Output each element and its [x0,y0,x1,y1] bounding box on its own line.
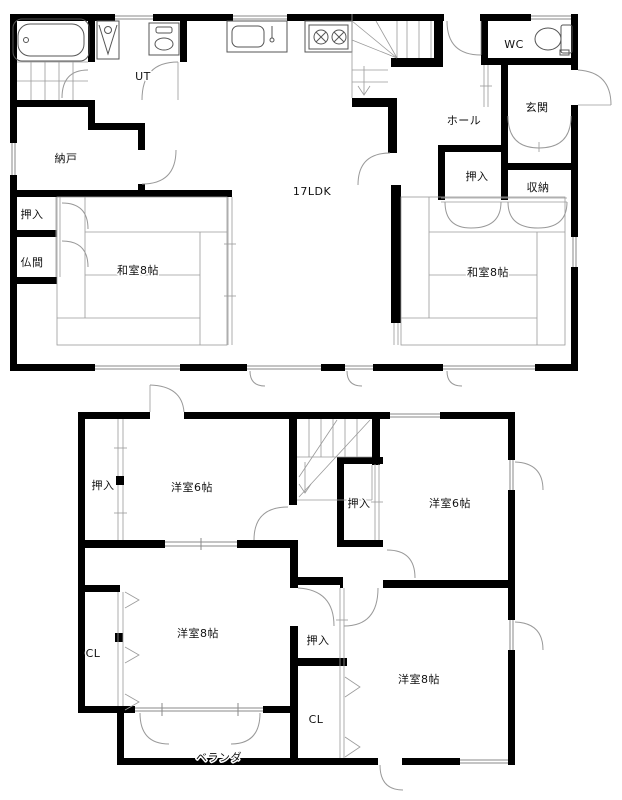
room-label-ldk: 17LDK [293,185,332,198]
washbasin-icon [149,23,179,55]
room-label-genkan: 玄関 [526,100,549,114]
floor2-windows [135,412,515,765]
room-label-yoshitsu-se: 洋室8帖 [398,672,440,686]
room-label-wc: WC [504,38,524,51]
room-label-veranda: ベランダ [196,750,242,764]
room-label-yoshitsu-nw: 洋室6帖 [171,480,213,494]
floorplan-sheet: UT 納戸 17LDK ホール WC 玄関 押入 収納 押入 仏間 和室8帖 和… [0,0,622,800]
room-label-yoshitsu-ne: 洋室6帖 [429,496,471,510]
floor2-labels: 押入 洋室6帖 押入 洋室6帖 CL 洋室8帖 押入 CL 洋室8帖 ベランダ [86,478,471,764]
room-label-washitsu-left: 和室8帖 [117,263,159,277]
room-label-oshiire-left: 押入 [21,207,44,221]
laundry-pan-icon [97,21,119,59]
floor1-labels: UT 納戸 17LDK ホール WC 玄関 押入 収納 押入 仏間 和室8帖 和… [21,38,550,279]
bath-tile [17,62,88,100]
room-label-oshiire-mid-upper: 押入 [348,496,371,510]
floorplan-drawing: UT 納戸 17LDK ホール WC 玄関 押入 収納 押入 仏間 和室8帖 和… [0,0,622,800]
room-label-yoshitsu-sw: 洋室8帖 [177,626,219,640]
stairs-1f [352,14,431,98]
floor1-plan: UT 納戸 17LDK ホール WC 玄関 押入 収納 押入 仏間 和室8帖 和… [10,14,611,386]
room-label-shuno: 収納 [527,181,550,194]
floor2-plan: 押入 洋室6帖 押入 洋室6帖 CL 洋室8帖 押入 CL 洋室8帖 ベランダ [78,385,543,790]
room-label-oshiire-right: 押入 [466,169,489,183]
room-label-ut: UT [135,70,151,83]
room-label-nando: 納戸 [55,152,78,165]
room-label-washitsu-right: 和室8帖 [467,265,509,279]
room-label-oshiire-nw: 押入 [92,478,115,492]
stove-icon [305,21,352,52]
room-label-cl-mid: CL [309,713,324,726]
room-label-hall: ホール [447,114,482,127]
toilet-icon [535,25,572,55]
room-label-oshiire-mid-lower: 押入 [307,633,330,647]
room-label-cl-west: CL [86,647,101,660]
kitchen-sink-icon [227,21,287,52]
room-label-butsuma: 仏間 [21,256,44,269]
